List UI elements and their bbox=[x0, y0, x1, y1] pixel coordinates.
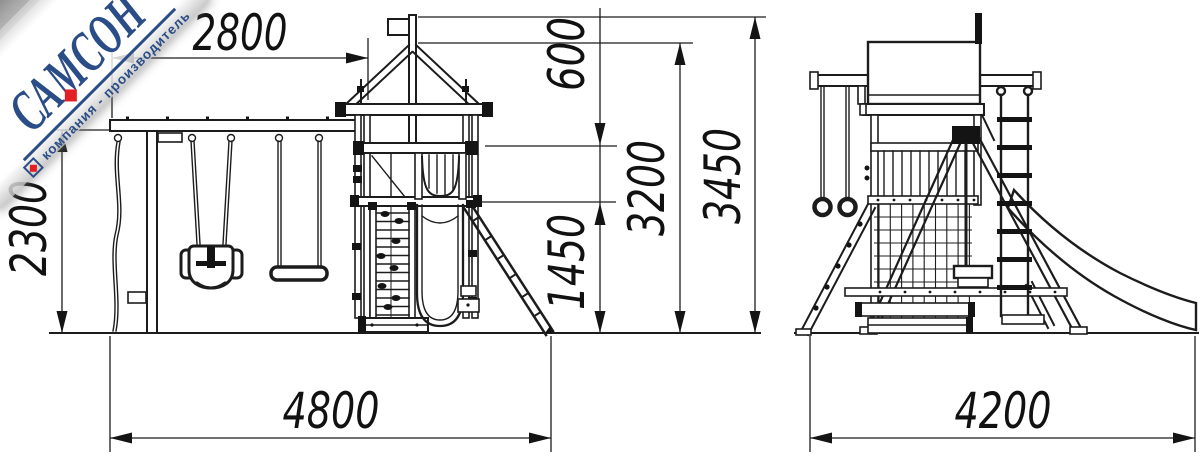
flat-swing bbox=[271, 135, 327, 281]
dim-600-label: 600 bbox=[538, 17, 596, 91]
dim-3200: 3200 bbox=[618, 43, 686, 333]
badge-diamond-icon bbox=[30, 164, 37, 171]
dim-3450: 3450 bbox=[694, 17, 761, 333]
technical-drawing: 2800 2300 600 1450 3200 bbox=[0, 0, 1200, 458]
flag bbox=[388, 19, 409, 35]
dim-600-1450: 600 1450 bbox=[538, 8, 606, 333]
baby-swing bbox=[181, 135, 242, 289]
dim-4200-label: 4200 bbox=[955, 382, 1052, 440]
flag-pole bbox=[409, 15, 416, 143]
slide-hood bbox=[415, 153, 466, 199]
side-view bbox=[795, 13, 1198, 335]
dim-2800-label: 2800 bbox=[193, 4, 288, 62]
flag-pole-side bbox=[975, 13, 982, 44]
side-roof bbox=[860, 13, 984, 115]
upper-rail bbox=[355, 143, 477, 153]
gym-rings bbox=[815, 86, 856, 215]
swing-frame bbox=[110, 117, 357, 334]
dim-4800: 4800 bbox=[110, 336, 551, 452]
dim-1450-label: 1450 bbox=[538, 214, 596, 310]
climbing-rope bbox=[113, 135, 122, 332]
base-boards bbox=[845, 288, 1067, 333]
dim-4200: 4200 bbox=[810, 336, 1195, 452]
dimensions: 2800 2300 600 1450 3200 bbox=[0, 4, 1195, 452]
dim-3200-label: 3200 bbox=[618, 140, 676, 236]
dim-4800-label: 4800 bbox=[283, 382, 380, 440]
climbing-holds bbox=[377, 211, 404, 310]
drawing-sheet: 2800 2300 600 1450 3200 bbox=[0, 0, 1200, 458]
brand-diamond-icon bbox=[65, 89, 77, 101]
dim-3450-label: 3450 bbox=[694, 128, 752, 224]
